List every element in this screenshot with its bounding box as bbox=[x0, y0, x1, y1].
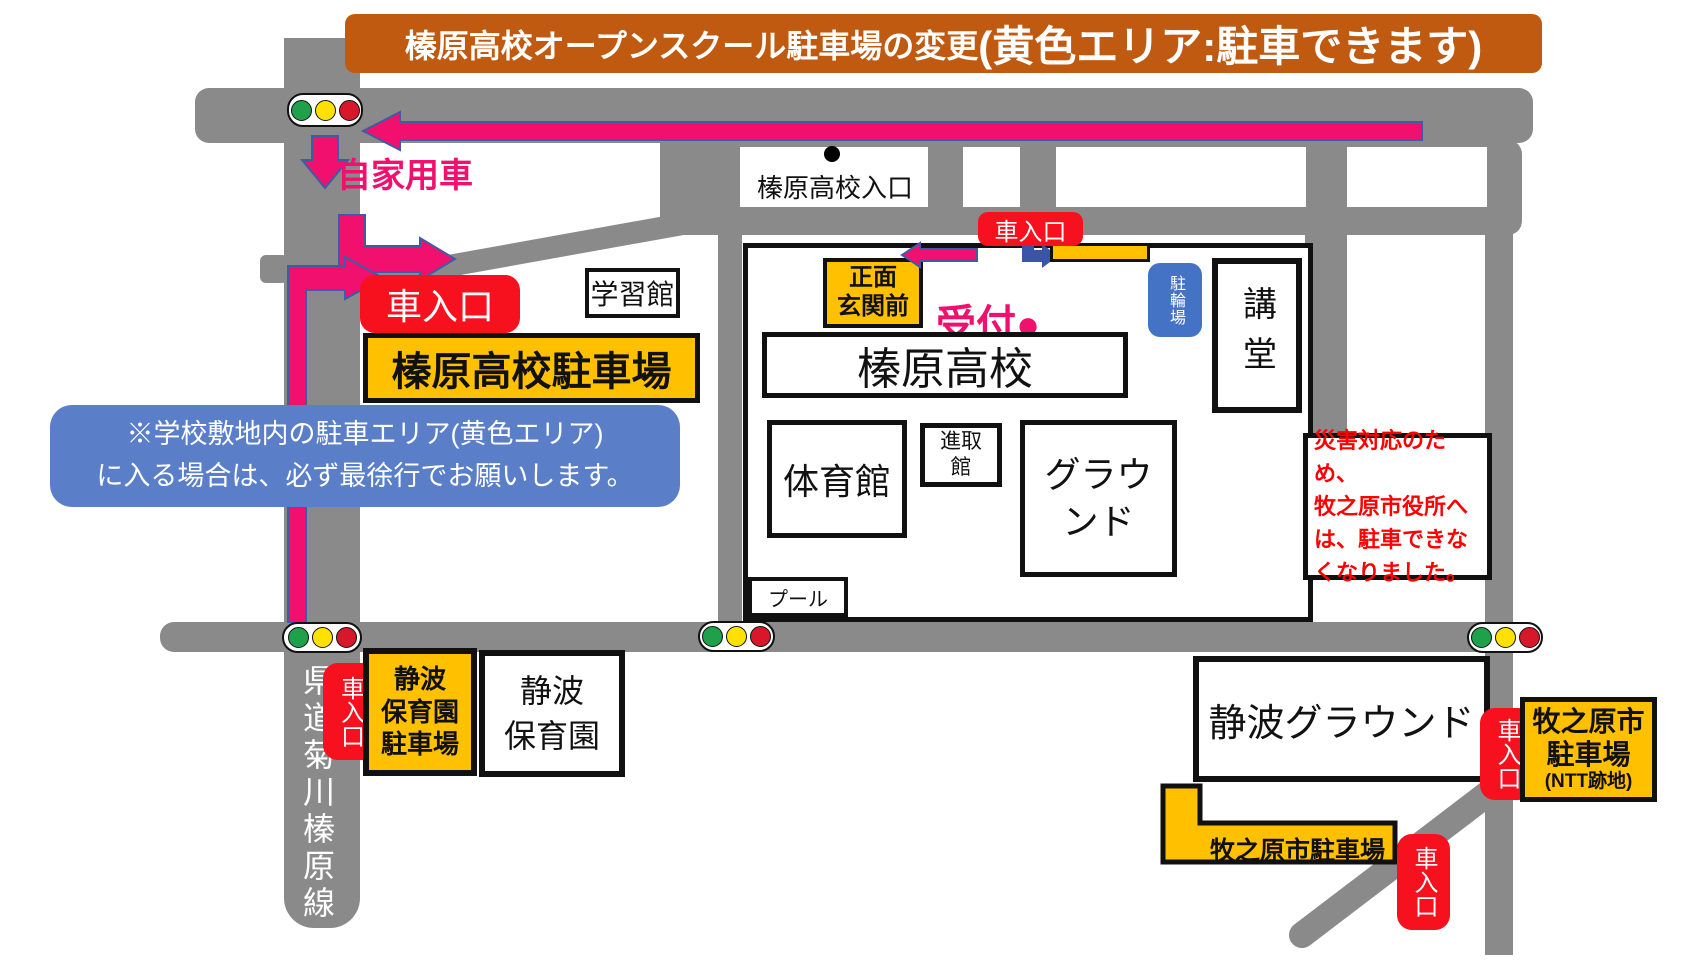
private-car-label: 自家用車 bbox=[337, 148, 473, 197]
slow-note-line1: ※学校敷地内の駐車エリア(黄色エリア) bbox=[50, 414, 680, 456]
signal-red bbox=[750, 626, 771, 647]
car-entrance-city-south: 車入口 bbox=[1397, 834, 1450, 930]
warning-line1: 災害対応のため、 bbox=[1314, 424, 1487, 490]
ntt-line2: 駐車場 bbox=[1546, 739, 1630, 771]
nursery-parking-line2: 保育園 bbox=[381, 696, 459, 729]
title-banner: 榛原高校オープンスクール駐車場の変更 (黄色エリア:駐車できます) bbox=[345, 14, 1542, 73]
slow-driving-note: ※学校敷地内の駐車エリア(黄色エリア) に入る場合は、必ず最徐行でお願いします。 bbox=[50, 405, 680, 507]
traffic-light-icon bbox=[1467, 622, 1543, 653]
title-emphasis: (黄色エリア:駐車できます) bbox=[978, 13, 1482, 74]
learning-hall-box: 学習館 bbox=[585, 268, 680, 318]
parking-map: 榛原高校入口 正面 玄関前 受付● 駐輪場 講堂 榛原高校 体育館 進取 館 グ… bbox=[0, 0, 1707, 960]
signal-red bbox=[336, 627, 357, 648]
signal-yellow bbox=[1495, 627, 1516, 648]
nursery-parking-box: 静波 保育園 駐車場 bbox=[363, 648, 477, 776]
car-entrance-main: 車入口 bbox=[360, 275, 520, 333]
shizunami-ground-box: 静波グラウンド bbox=[1193, 656, 1490, 782]
car-entrance-front: 車入口 bbox=[978, 212, 1083, 246]
route-arrow-to-front-entrance bbox=[902, 243, 977, 267]
nursery-box: 静波 保育園 bbox=[479, 650, 625, 777]
signal-green bbox=[1471, 627, 1492, 648]
traffic-light-icon bbox=[698, 621, 775, 652]
nursery-parking-line3: 駐車場 bbox=[381, 728, 459, 761]
school-parking-box: 榛原高校駐車場 bbox=[363, 333, 700, 403]
warning-line3: は、駐車できな bbox=[1314, 523, 1487, 556]
nursery-line2: 保育園 bbox=[504, 714, 600, 759]
nursery-parking-line1: 静波 bbox=[394, 663, 446, 696]
ntt-line1: 牧之原市 bbox=[1532, 706, 1644, 738]
title-main: 榛原高校オープンスクール駐車場の変更 bbox=[405, 21, 978, 67]
city-parking-ntt-box: 牧之原市 駐車場 (NTT跡地) bbox=[1520, 697, 1657, 802]
signal-green bbox=[291, 100, 312, 121]
signal-yellow bbox=[315, 100, 336, 121]
signal-yellow bbox=[726, 626, 747, 647]
warning-line2: 牧之原市役所へ bbox=[1314, 490, 1487, 523]
traffic-light-icon bbox=[287, 93, 363, 127]
signal-green bbox=[288, 627, 309, 648]
signal-red bbox=[1519, 627, 1540, 648]
signal-green bbox=[702, 626, 723, 647]
ntt-line3: (NTT跡地) bbox=[1545, 771, 1633, 793]
signal-yellow bbox=[312, 627, 333, 648]
signal-red bbox=[339, 100, 360, 121]
route-arrow-main-west bbox=[363, 112, 1422, 150]
slow-note-line2: に入る場合は、必ず最徐行でお願いします。 bbox=[50, 456, 680, 498]
disaster-warning-box: 災害対応のため、 牧之原市役所へ は、駐車できな くなりました。 bbox=[1303, 433, 1492, 580]
warning-line4: くなりました。 bbox=[1314, 556, 1487, 589]
nursery-line1: 静波 bbox=[520, 669, 584, 714]
traffic-light-icon bbox=[282, 622, 362, 653]
city-parking-label: 牧之原市駐車場 bbox=[1205, 831, 1390, 867]
